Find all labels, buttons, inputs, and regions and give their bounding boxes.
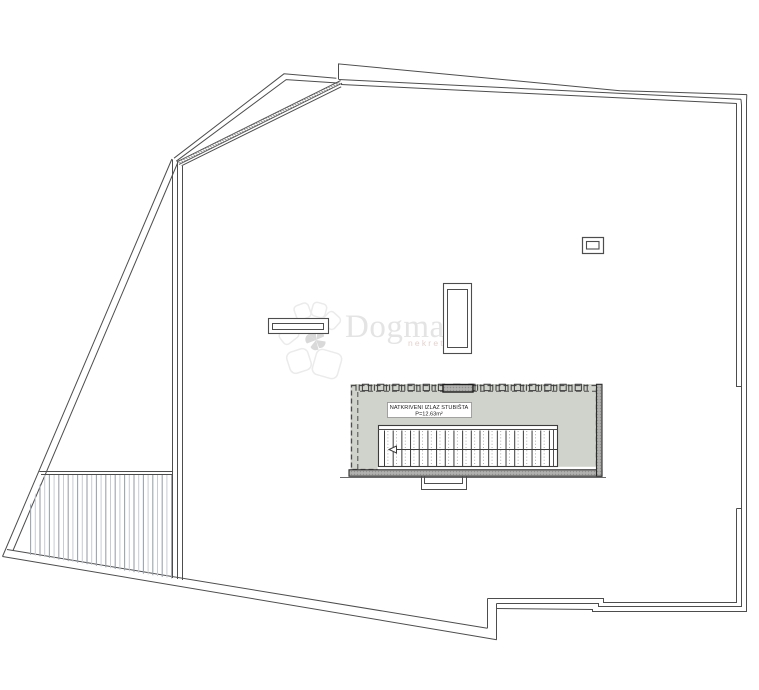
svg-text:P=12.63m²: P=12.63m² (415, 412, 443, 418)
svg-text:NATKRIVENI IZLAZ STUBIŠTA: NATKRIVENI IZLAZ STUBIŠTA (390, 404, 469, 411)
